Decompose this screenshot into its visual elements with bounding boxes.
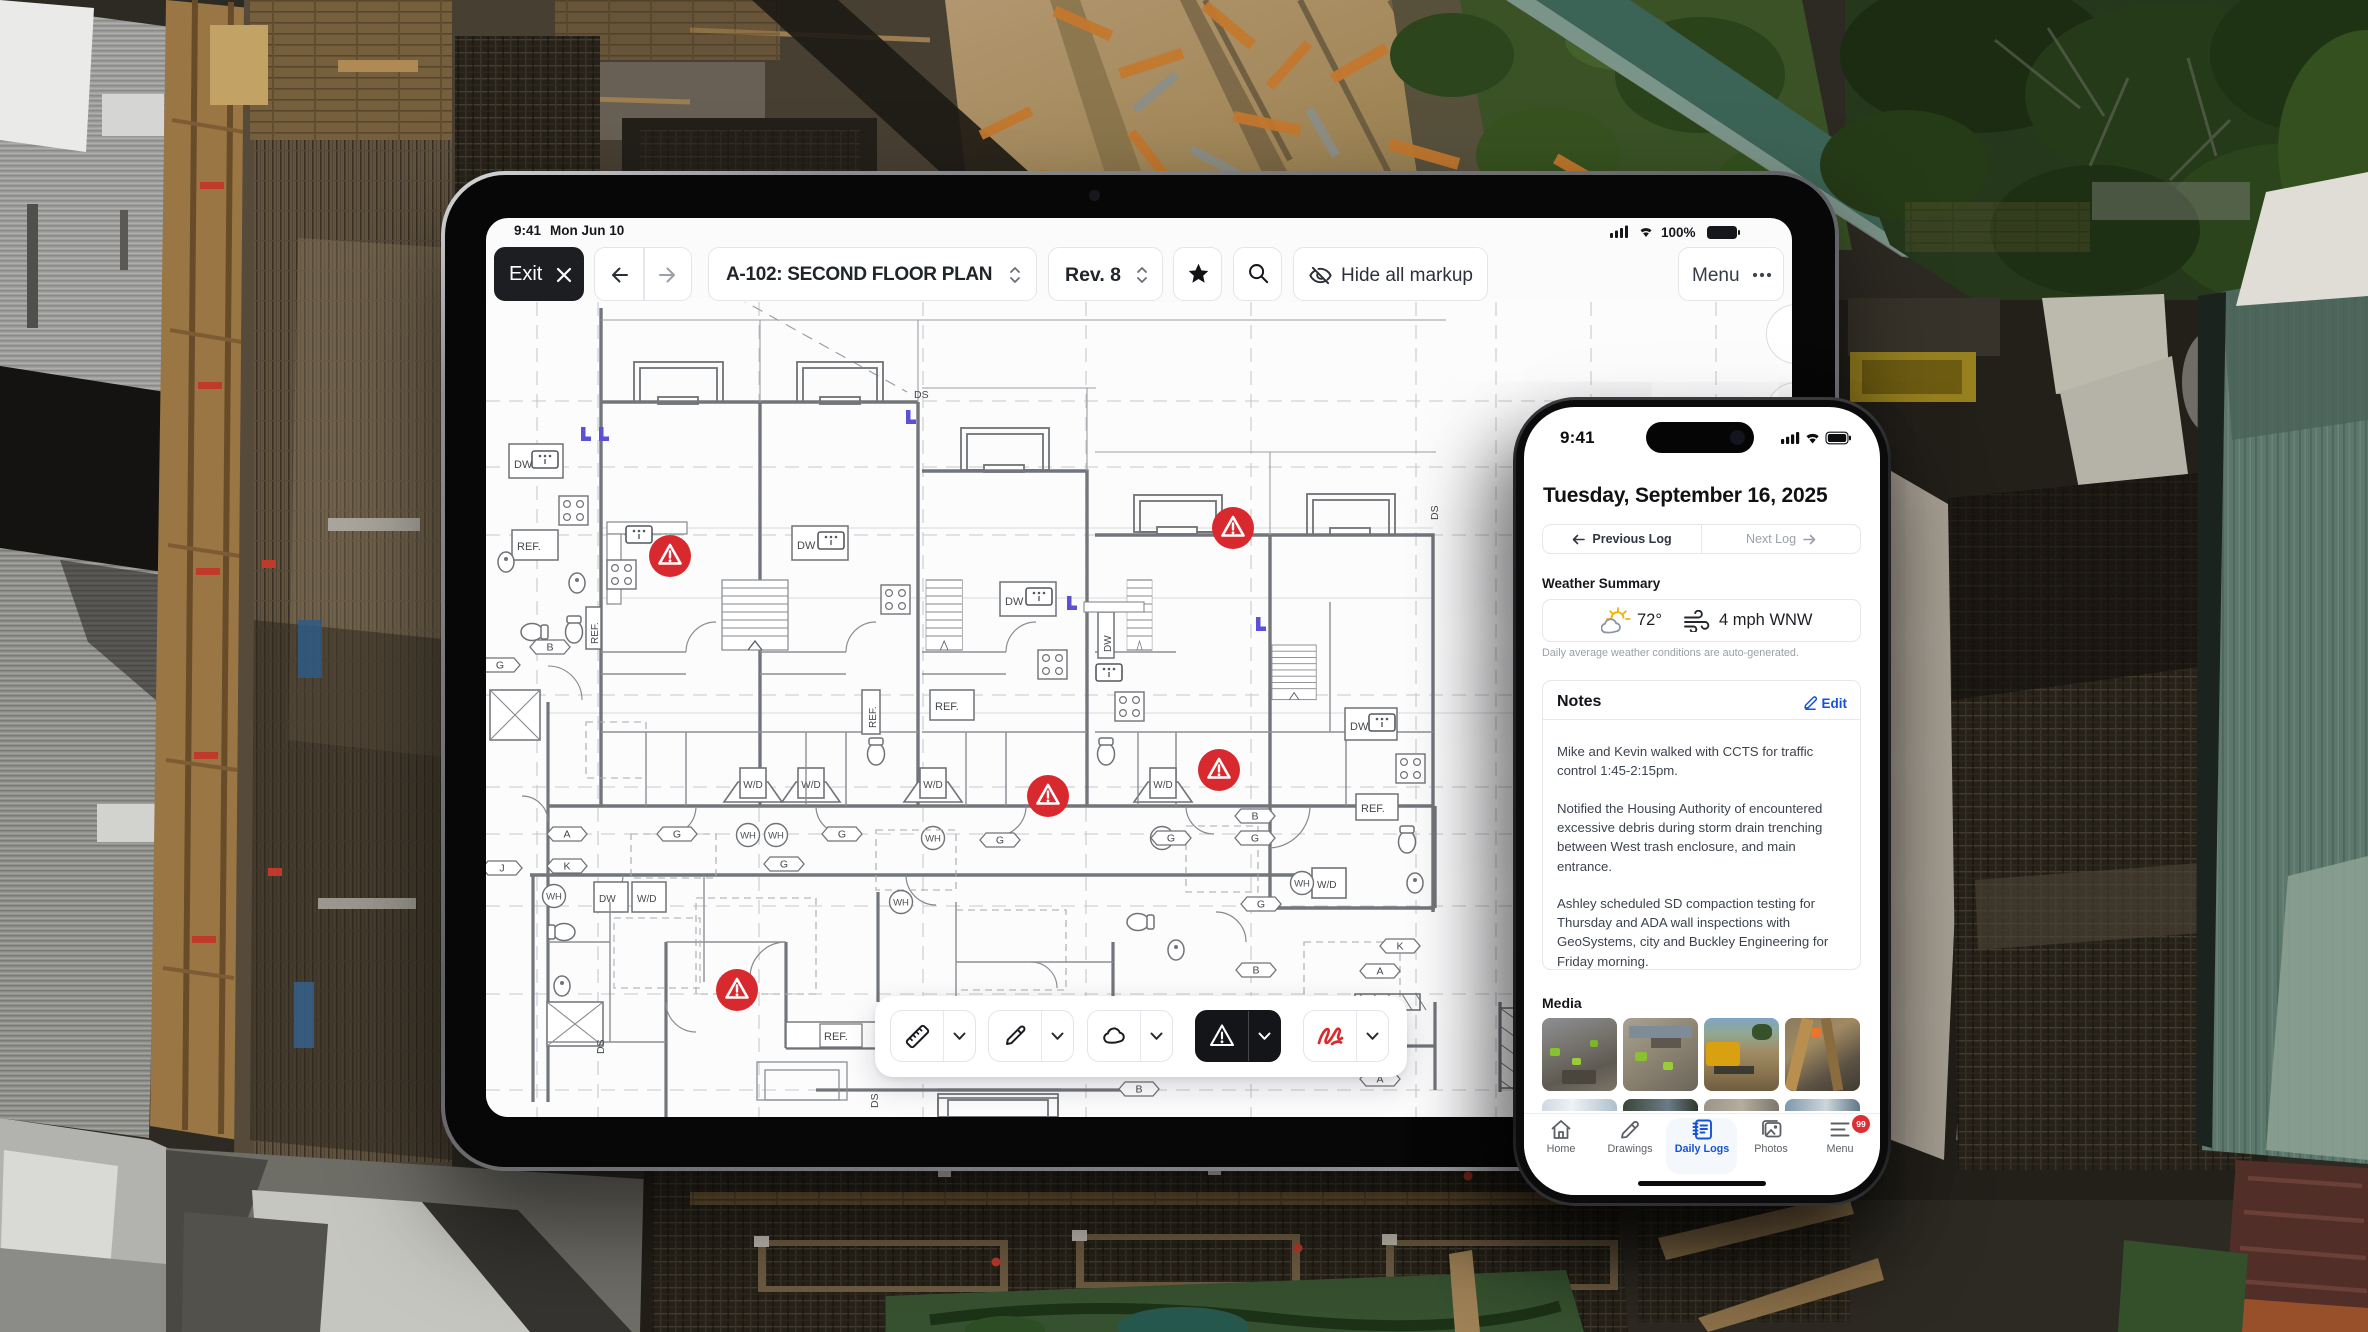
svg-text:DW: DW [1103, 635, 1114, 652]
svg-text:G: G [1167, 833, 1175, 845]
svg-text:DW: DW [599, 894, 616, 905]
svg-text:B: B [1252, 965, 1259, 977]
svg-text:100%: 100% [1661, 225, 1696, 240]
svg-text:REF.: REF. [590, 622, 601, 644]
svg-text:K: K [1396, 941, 1403, 953]
svg-text:DS: DS [1429, 505, 1441, 520]
svg-text:A: A [1376, 966, 1383, 978]
svg-text:REF.: REF. [935, 701, 959, 713]
svg-text:REF.: REF. [1361, 803, 1385, 815]
svg-text:DW: DW [514, 459, 533, 471]
svg-text:G: G [673, 829, 681, 841]
svg-text:G: G [780, 859, 788, 871]
svg-text:J: J [499, 863, 504, 875]
svg-text:REF.: REF. [824, 1031, 848, 1043]
svg-text:DW: DW [1005, 596, 1024, 608]
svg-text:DS: DS [914, 389, 929, 401]
svg-text:A: A [563, 829, 570, 841]
svg-text:G: G [996, 835, 1004, 847]
svg-text:G: G [1251, 833, 1259, 845]
svg-text:DS: DS [595, 1039, 607, 1054]
svg-text:DW: DW [797, 540, 816, 552]
svg-text:W/D: W/D [1317, 880, 1336, 891]
svg-text:B: B [546, 642, 553, 654]
svg-text:G: G [1257, 899, 1265, 911]
svg-text:B: B [1135, 1084, 1142, 1096]
svg-text:G: G [496, 660, 504, 672]
svg-text:K: K [563, 861, 570, 873]
svg-text:G: G [838, 829, 846, 841]
svg-text:B: B [1251, 811, 1258, 823]
svg-text:DS: DS [869, 1093, 881, 1108]
svg-text:W/D: W/D [637, 894, 656, 905]
svg-text:REF.: REF. [517, 541, 541, 553]
svg-text:REF.: REF. [868, 706, 879, 728]
svg-text:DW: DW [1350, 721, 1369, 733]
